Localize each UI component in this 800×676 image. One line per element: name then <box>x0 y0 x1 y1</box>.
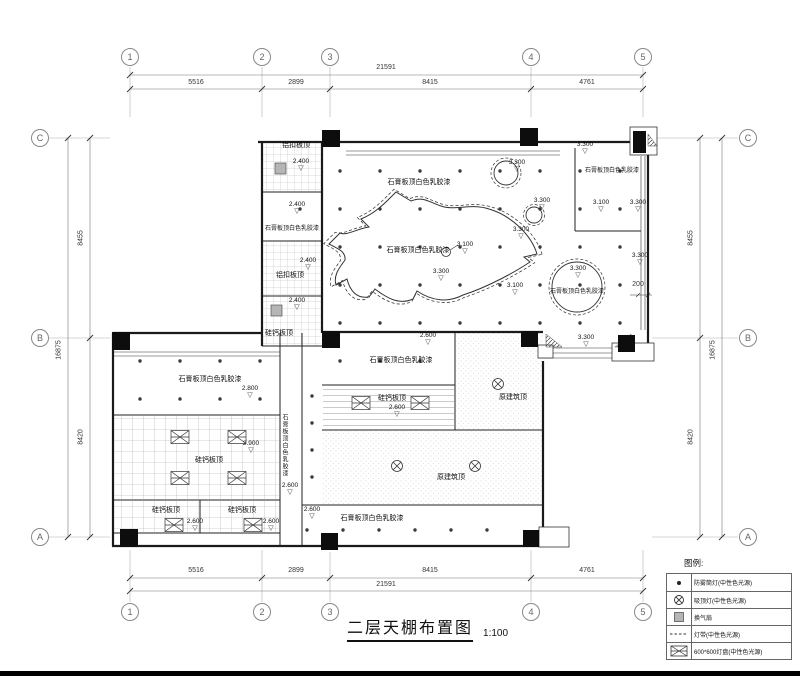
elevation-triangle-icon: ▽ <box>583 341 588 348</box>
ceiling-label-silicate: 硅钙板顶 <box>378 395 406 402</box>
ceiling-label-gypsum: 石膏板顶白色乳胶漆 <box>265 226 319 232</box>
ceiling-label-gypsum: 石膏板顶白色乳胶漆 <box>179 376 242 383</box>
light-strip-icon <box>667 626 692 642</box>
vent-fan-icon <box>667 609 692 625</box>
grid-bubble-top-1: 1 <box>121 48 139 66</box>
grid-bubble-right-A: A <box>739 528 757 546</box>
elevation-triangle-icon: ▽ <box>294 304 299 311</box>
elevation-triangle-icon: ▽ <box>248 447 253 454</box>
legend-row: 灯带(中性色光源) <box>667 625 791 642</box>
elevation-triangle-icon: ▽ <box>635 206 640 213</box>
grid-bubble-bottom-1: 1 <box>121 603 139 621</box>
elevation-triangle-icon: ▽ <box>298 165 303 172</box>
legend-row: 防雾筒灯(中性色光源) <box>667 574 791 591</box>
elevation-triangle-icon: ▽ <box>309 513 314 520</box>
elevation-marker: 2.600▽ <box>304 507 320 520</box>
dim-label: 2899 <box>288 567 304 574</box>
elevation-marker: 3.100▽ <box>507 283 523 296</box>
elevation-triangle-icon: ▽ <box>425 339 430 346</box>
dim-total-label: 16875 <box>710 340 717 359</box>
ceiling-label-silicate: 硅钙板顶 <box>228 507 256 514</box>
elevation-marker: 2.400▽ <box>293 159 309 172</box>
elevation-marker: 2.600▽ <box>389 405 405 418</box>
elevation-marker: 3.300▽ <box>578 335 594 348</box>
fog-downlight-icon <box>667 574 692 591</box>
elevation-triangle-icon: ▽ <box>539 204 544 211</box>
elevation-triangle-icon: ▽ <box>514 166 519 173</box>
grid-bubble-left-C: C <box>31 129 49 147</box>
elevation-marker: 2.400▽ <box>289 298 305 311</box>
legend-label: 防雾筒灯(中性色光源) <box>692 574 752 591</box>
elevation-triangle-icon: ▽ <box>512 289 517 296</box>
elevation-marker: 2.400▽ <box>289 202 305 215</box>
ceiling-label-silicate: 硅钙板顶 <box>195 457 223 464</box>
elevation-marker: 2.600▽ <box>420 333 436 346</box>
grid-bubble-top-3: 3 <box>321 48 339 66</box>
ceiling-label-gypsum: 石膏板顶白色乳胶漆 <box>550 289 604 295</box>
elevation-marker: 3.300▽ <box>577 142 593 155</box>
elevation-triangle-icon: ▽ <box>637 259 642 266</box>
legend-row: 600*600灯盘(中性色光源) <box>667 642 791 659</box>
ceiling-label-original: 原建筑顶 <box>499 394 527 401</box>
dim-label: 8420 <box>688 429 695 445</box>
dim-label: 8455 <box>688 230 695 246</box>
elevation-triangle-icon: ▽ <box>294 208 299 215</box>
elevation-marker: 3.300▽ <box>632 253 648 266</box>
elevation-triangle-icon: ▽ <box>394 411 399 418</box>
ceiling-plan-sheet: 1 2 3 4 5 1 2 3 4 5 C B A C B A 5516 289… <box>0 0 800 676</box>
legend-label: 吸顶灯(中性色光源) <box>692 592 746 608</box>
legend-label: 600*600灯盘(中性色光源) <box>692 643 762 659</box>
dim-label: 4761 <box>579 79 595 86</box>
ceiling-label-aluminum: 铝扣板顶 <box>276 272 304 279</box>
elevation-triangle-icon: ▽ <box>518 233 523 240</box>
grid-bubble-bottom-4: 4 <box>522 603 540 621</box>
grid-bubble-right-C: C <box>739 129 757 147</box>
dim-total-label: 21591 <box>376 581 395 588</box>
elevation-triangle-icon: ▽ <box>268 525 273 532</box>
grid-bubble-bottom-5: 5 <box>634 603 652 621</box>
dim-label: 4761 <box>579 567 595 574</box>
drawing-scale: 1:100 <box>483 628 508 642</box>
dim-label: 8420 <box>78 429 85 445</box>
legend-row: 换气扇 <box>667 608 791 625</box>
elevation-triangle-icon: ▽ <box>247 392 252 399</box>
dim-label: 8455 <box>78 230 85 246</box>
elevation-marker: 3.300▽ <box>513 227 529 240</box>
ceiling-label-gypsum: 石膏板顶白色乳胶漆 <box>370 357 433 364</box>
elevation-marker: 2.800▽ <box>242 386 258 399</box>
ceiling-label-gypsum-vertical: 石膏板顶白色乳胶漆 <box>281 414 287 477</box>
grid-bubble-top-4: 4 <box>522 48 540 66</box>
dim-label: 5516 <box>188 79 204 86</box>
dim-offset-label: 200 <box>632 281 644 288</box>
grid-bubble-right-B: B <box>739 329 757 347</box>
legend-row: 吸顶灯(中性色光源) <box>667 591 791 608</box>
ceiling-label-silicate: 硅钙板顶 <box>152 507 180 514</box>
ceiling-label-gypsum: 石膏板顶白色乳胶漆 <box>585 168 639 174</box>
legend-table: 防雾筒灯(中性色光源) 吸顶灯(中性色光源) 换气扇 灯带(中性色光源) <box>666 573 792 660</box>
drawing-title-block: 二层天棚布置图 1:100 <box>347 620 508 642</box>
elevation-triangle-icon: ▽ <box>575 272 580 279</box>
elevation-marker: 2.600▽ <box>187 519 203 532</box>
ceiling-lamp-icon <box>667 592 692 608</box>
grid-bubble-left-B: B <box>31 329 49 347</box>
sheet-edge-bar <box>0 671 800 676</box>
grid-bubble-bottom-3: 3 <box>321 603 339 621</box>
elevation-triangle-icon: ▽ <box>305 264 310 271</box>
elevation-marker: 3.300▽ <box>534 198 550 211</box>
dim-total-label: 21591 <box>376 64 395 71</box>
drawing-title: 二层天棚布置图 <box>347 620 473 642</box>
elevation-triangle-icon: ▽ <box>582 148 587 155</box>
elevation-marker: 3.300▽ <box>509 160 525 173</box>
elevation-triangle-icon: ▽ <box>462 248 467 255</box>
ceiling-label-aluminum: 铝扣板顶 <box>282 142 310 149</box>
dim-label: 8415 <box>422 79 438 86</box>
elevation-marker: 3.100▽ <box>457 242 473 255</box>
ceiling-label-gypsum: 石膏板顶白色乳胶漆 <box>341 515 404 522</box>
elevation-triangle-icon: ▽ <box>287 489 292 496</box>
dim-label: 5516 <box>188 567 204 574</box>
ceiling-label-gypsum: 石膏板顶白色乳胶漆 <box>388 179 451 186</box>
elevation-marker: 2.600▽ <box>263 519 279 532</box>
dim-total-label: 16875 <box>56 340 63 359</box>
grid-bubble-top-5: 5 <box>634 48 652 66</box>
grid-bubble-top-2: 2 <box>253 48 271 66</box>
grid-bubble-left-A: A <box>31 528 49 546</box>
legend-label: 灯带(中性色光源) <box>692 626 740 642</box>
elevation-marker: 2.400▽ <box>300 258 316 271</box>
elevation-marker: 3.300▽ <box>433 269 449 282</box>
legend: 图例: 防雾筒灯(中性色光源) 吸顶灯(中性色光源) 换气扇 <box>666 557 792 660</box>
dim-label: 2899 <box>288 79 304 86</box>
elevation-triangle-icon: ▽ <box>438 275 443 282</box>
legend-heading: 图例: <box>684 557 792 569</box>
grid-bubble-bottom-2: 2 <box>253 603 271 621</box>
legend-label: 换气扇 <box>692 609 712 625</box>
elevation-marker: 2.900▽ <box>243 441 259 454</box>
elevation-triangle-icon: ▽ <box>598 206 603 213</box>
ceiling-label-silicate: 硅钙板顶 <box>265 330 293 337</box>
ceiling-label-gypsum: 石膏板顶白色乳胶漆 <box>387 247 450 254</box>
light-panel-icon <box>667 643 692 659</box>
ceiling-pattern-fills <box>114 143 642 532</box>
dim-label: 8415 <box>422 567 438 574</box>
elevation-marker: 3.100▽ <box>593 200 609 213</box>
elevation-marker: 2.600▽ <box>282 483 298 496</box>
elevation-marker: 3.300▽ <box>630 200 646 213</box>
elevation-marker: 3.300▽ <box>570 266 586 279</box>
elevation-triangle-icon: ▽ <box>192 525 197 532</box>
ceiling-label-original: 原建筑顶 <box>437 474 465 481</box>
